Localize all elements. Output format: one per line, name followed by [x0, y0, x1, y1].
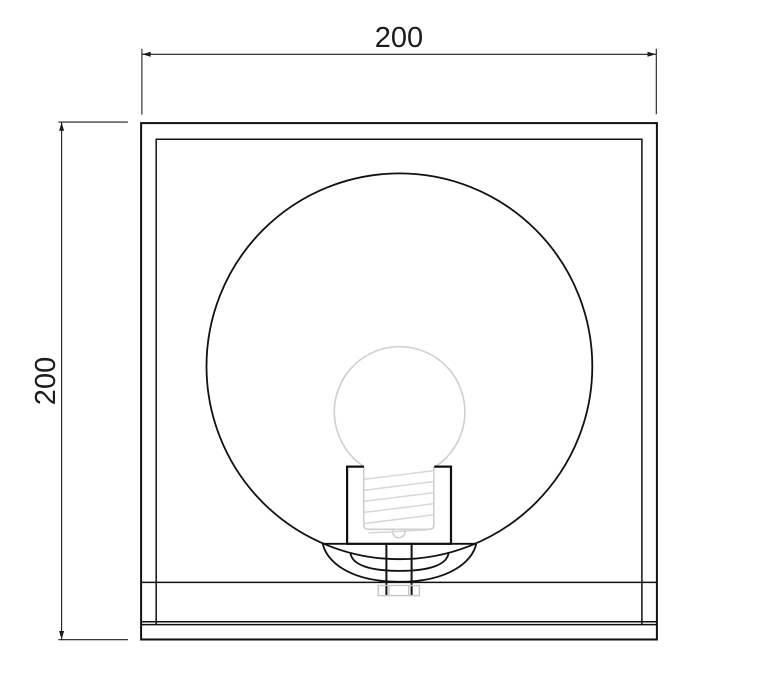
- svg-text:200: 200: [30, 357, 62, 405]
- svg-text:200: 200: [375, 22, 423, 54]
